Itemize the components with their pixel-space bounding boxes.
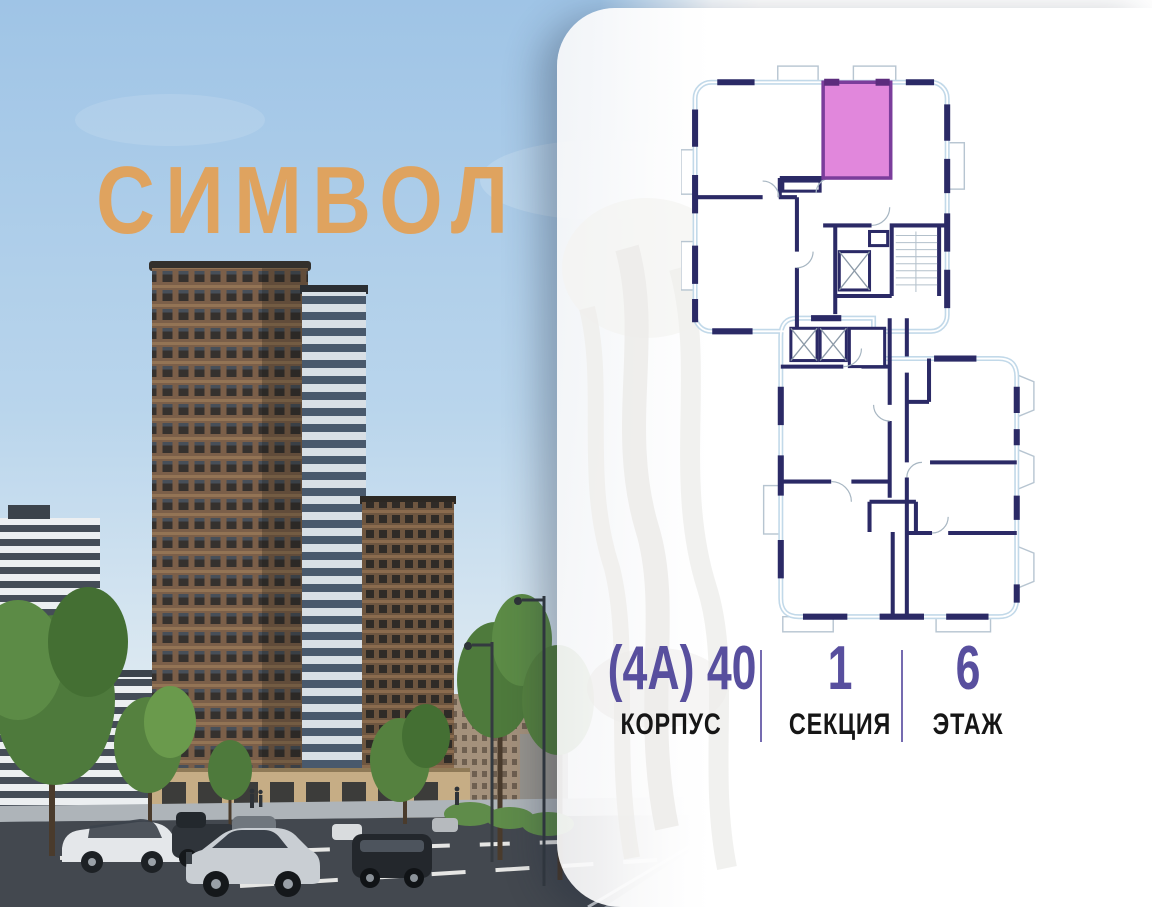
glass-tower — [302, 292, 366, 808]
listing-card[interactable]: СИМВОЛ — [0, 0, 1152, 907]
main-tower-shade — [262, 268, 308, 810]
details-panel: (4А) 40 КОРПУС 1 СЕКЦИЯ 6 ЭТАЖ — [557, 8, 1152, 907]
distant-car — [432, 818, 458, 832]
plan-wardrobe — [783, 181, 820, 191]
building-left-roofbox — [8, 505, 50, 519]
lower-section-outline — [781, 318, 1017, 616]
highlighted-unit[interactable] — [823, 82, 891, 178]
corpus-value: (4А) 40 — [608, 638, 735, 700]
floor-value: 6 — [918, 638, 1019, 700]
floor-info: 6 ЭТАЖ — [898, 638, 1038, 740]
section-label: СЕКЦИЯ — [785, 710, 894, 740]
section-info: 1 СЕКЦИЯ — [770, 638, 910, 740]
corpus-label: КОРПУС — [602, 710, 739, 740]
corpus-info: (4А) 40 КОРПУС — [583, 638, 759, 740]
upper-section-outline — [695, 82, 947, 331]
brand-logo: СИМВОЛ — [96, 146, 518, 256]
cloud — [75, 94, 265, 146]
floorplan — [681, 54, 1051, 654]
floor-label: ЭТАЖ — [913, 710, 1022, 740]
info-divider — [760, 650, 762, 742]
section-value: 1 — [790, 638, 891, 700]
